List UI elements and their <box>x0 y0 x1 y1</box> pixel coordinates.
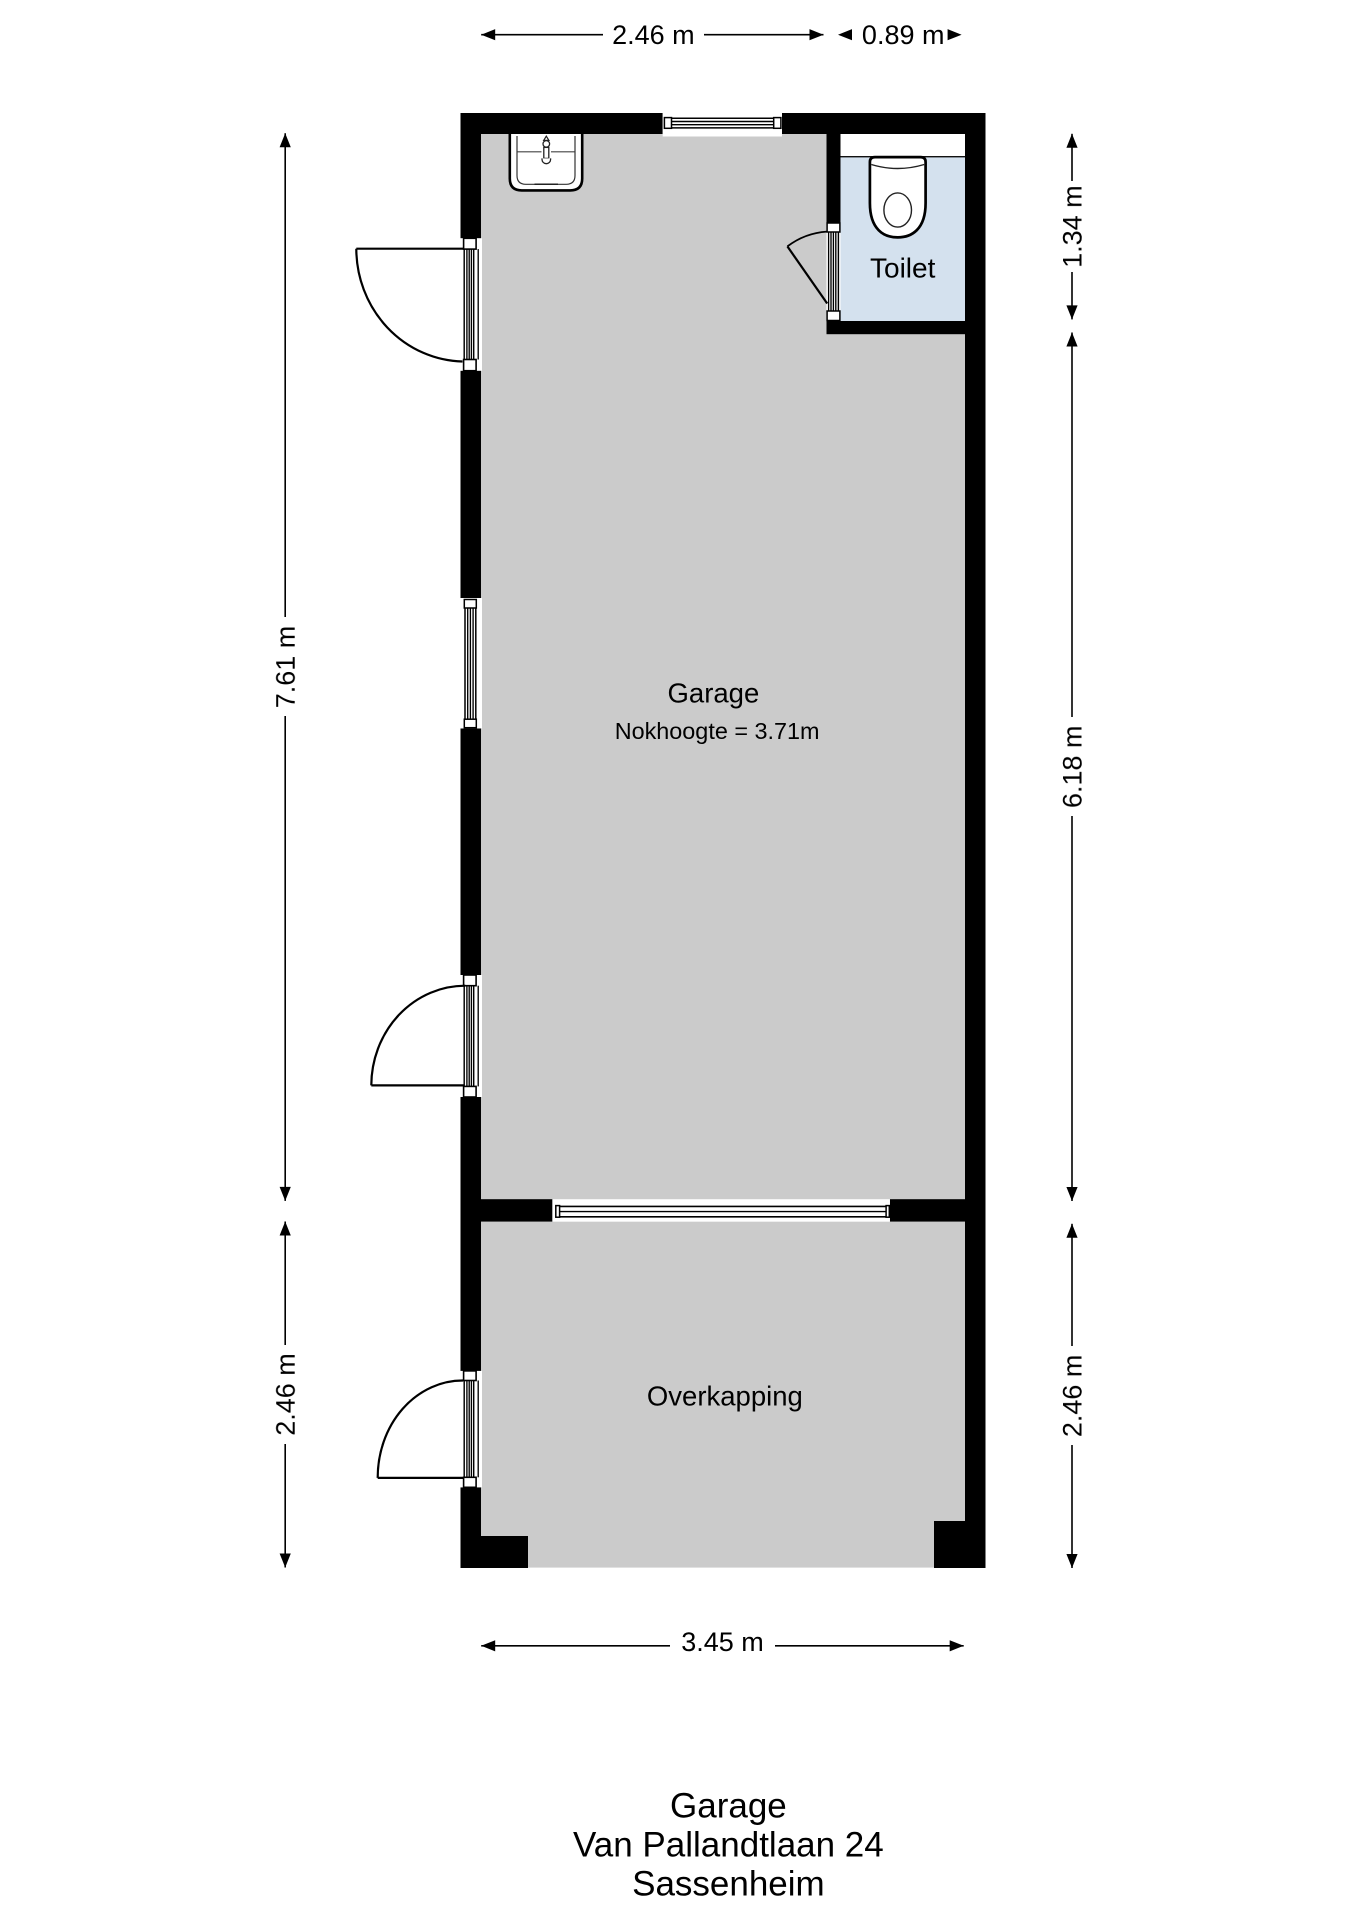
svg-text:Nokhoogte = 3.71m: Nokhoogte = 3.71m <box>615 718 820 744</box>
svg-text:0.89 m: 0.89 m <box>862 20 945 50</box>
svg-text:Garage: Garage <box>670 1786 787 1825</box>
svg-text:Overkapping: Overkapping <box>647 1380 803 1411</box>
svg-text:Van Pallandtlaan 24: Van Pallandtlaan 24 <box>573 1825 884 1864</box>
svg-text:Garage: Garage <box>668 678 760 709</box>
svg-text:2.46 m: 2.46 m <box>612 20 695 50</box>
svg-text:1.34 m: 1.34 m <box>1057 185 1087 268</box>
svg-text:2.46 m: 2.46 m <box>1057 1355 1087 1438</box>
svg-text:3.45 m: 3.45 m <box>681 1627 764 1657</box>
svg-text:Toilet: Toilet <box>870 252 936 283</box>
svg-text:2.46 m: 2.46 m <box>271 1353 301 1436</box>
svg-text:6.18 m: 6.18 m <box>1057 726 1087 809</box>
svg-text:7.61 m: 7.61 m <box>271 626 301 709</box>
svg-text:Sassenheim: Sassenheim <box>632 1864 825 1903</box>
